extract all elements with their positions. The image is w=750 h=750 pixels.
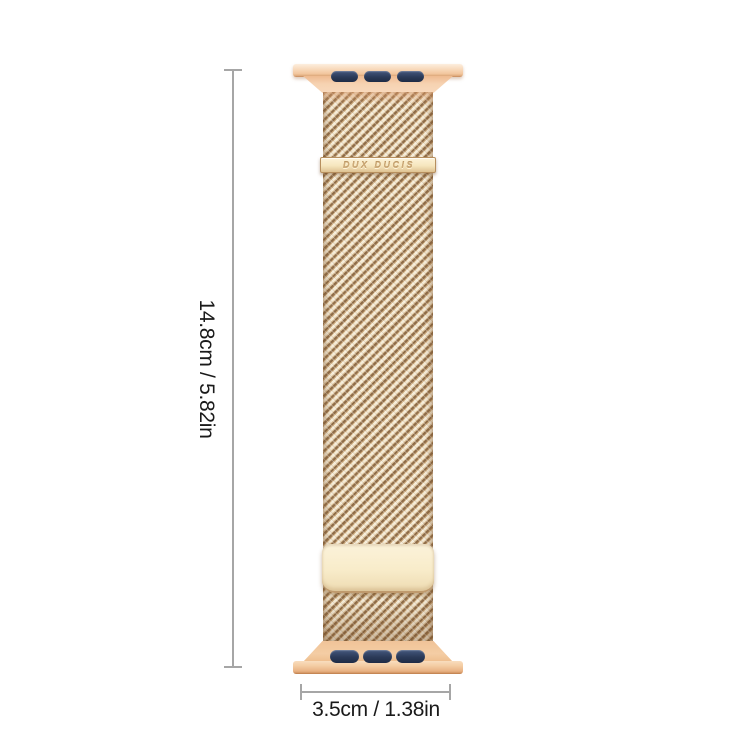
top-connector-slot <box>364 71 391 82</box>
slider-clasp: DUX DUCIS <box>320 157 436 173</box>
height-dimension-tick-top <box>224 69 242 71</box>
width-dimension-tick-right <box>449 684 451 700</box>
width-dimension-line <box>301 691 451 693</box>
bottom-connector-slot <box>396 650 425 663</box>
brand-engraving: DUX DUCIS <box>343 161 415 170</box>
bottom-connector-slot <box>363 650 392 663</box>
magnet-plate <box>322 544 434 593</box>
mesh-top-shadow <box>323 92 433 104</box>
top-connector-slot <box>331 71 358 82</box>
height-dimension-tick-bottom <box>224 666 242 668</box>
product-dimension-diagram: 14.8cm / 5.82in 3.5cm / 1.38in DUX DUCIS <box>0 0 750 750</box>
top-connector-slot <box>397 71 424 82</box>
width-dimension-label: 3.5cm / 1.38in <box>312 698 440 722</box>
bottom-connector-slot <box>330 650 359 663</box>
width-dimension-tick-left <box>300 684 302 700</box>
mesh-bottom-shadow <box>323 598 433 642</box>
height-dimension-label: 14.8cm / 5.82in <box>194 299 218 438</box>
height-dimension-line <box>232 70 234 668</box>
